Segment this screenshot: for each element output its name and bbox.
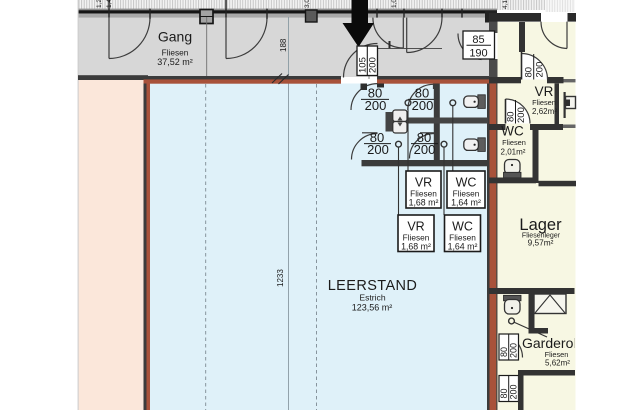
svg-text:200: 200 — [367, 142, 389, 157]
svg-text:200: 200 — [509, 384, 519, 399]
svg-text:1,68 m²: 1,68 m² — [409, 198, 439, 208]
svg-text:2,01m²: 2,01m² — [501, 148, 526, 157]
svg-text:37,52 m²: 37,52 m² — [157, 57, 193, 67]
svg-text:190: 190 — [469, 48, 487, 60]
svg-text:1,4: 1,4 — [106, 0, 113, 8]
svg-text:4,1: 4,1 — [502, 0, 509, 9]
svg-text:1233: 1233 — [276, 269, 285, 287]
svg-text:200: 200 — [414, 142, 436, 157]
svg-text:VR: VR — [415, 176, 432, 190]
svg-text:VR: VR — [407, 220, 424, 234]
svg-text:1,64 m²: 1,64 m² — [451, 198, 481, 208]
svg-text:200: 200 — [365, 98, 387, 113]
svg-text:Estrich: Estrich — [359, 293, 385, 303]
svg-text:Fliesen: Fliesen — [162, 48, 189, 58]
svg-text:WC: WC — [456, 176, 477, 190]
svg-text:2,62m²: 2,62m² — [532, 107, 557, 116]
svg-text:5,62m²: 5,62m² — [545, 359, 570, 368]
svg-text:123,56 m²: 123,56 m² — [352, 303, 393, 313]
svg-text:80: 80 — [524, 67, 535, 78]
svg-text:Gang: Gang — [158, 28, 192, 44]
svg-text:80: 80 — [499, 347, 509, 357]
svg-text:WC: WC — [452, 220, 473, 234]
svg-text:1,0: 1,0 — [391, 0, 398, 8]
svg-text:Lager: Lager — [519, 216, 562, 234]
svg-text:80: 80 — [506, 111, 517, 122]
svg-text:1,64 m²: 1,64 m² — [448, 242, 478, 252]
svg-text:200: 200 — [368, 57, 379, 73]
svg-text:1,68 m²: 1,68 m² — [401, 242, 431, 252]
svg-text:200: 200 — [535, 62, 546, 78]
svg-text:9,57m²: 9,57m² — [528, 238, 554, 248]
svg-text:200: 200 — [509, 343, 519, 358]
svg-text:80: 80 — [499, 388, 509, 398]
svg-text:85: 85 — [472, 34, 484, 46]
svg-text:Fliesen: Fliesen — [502, 138, 526, 147]
svg-text:200: 200 — [516, 107, 527, 123]
svg-text:1,2: 1,2 — [96, 0, 103, 8]
svg-text:188: 188 — [279, 38, 288, 52]
svg-text:WC: WC — [501, 124, 524, 139]
svg-text:200: 200 — [412, 98, 434, 113]
svg-text:VR: VR — [535, 84, 554, 99]
svg-text:3,0: 3,0 — [304, 0, 311, 8]
svg-text:Fliesen: Fliesen — [532, 98, 556, 107]
